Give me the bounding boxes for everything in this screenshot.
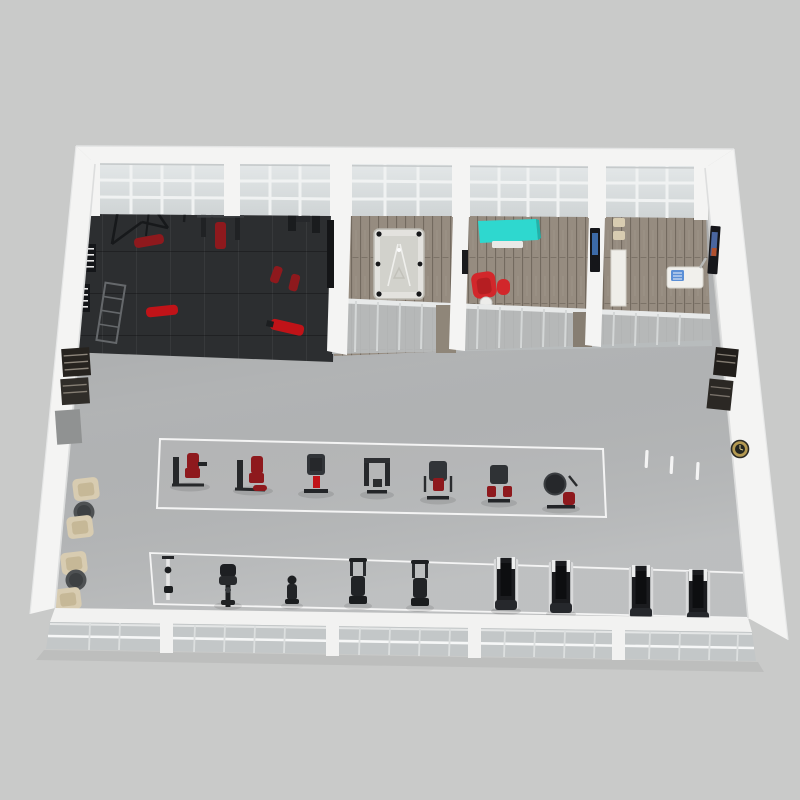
treadmill	[491, 557, 521, 615]
pool-table	[374, 229, 424, 299]
wall-clock	[732, 441, 749, 458]
wall-pier	[612, 629, 625, 660]
desk-base	[492, 241, 523, 248]
red-armchair	[470, 270, 497, 299]
cue-ball	[397, 248, 401, 252]
side-table-top	[69, 573, 83, 587]
wall-pier	[588, 164, 606, 218]
treadmill	[546, 560, 576, 618]
storage-cabinet	[611, 250, 626, 306]
armchair	[72, 476, 100, 501]
cyan-reception-desk	[478, 219, 538, 243]
side-chair	[613, 218, 625, 227]
armchair	[66, 514, 94, 539]
red-ottoman	[497, 279, 510, 295]
wall-tv	[462, 250, 468, 274]
gym-floor-plan-svg	[0, 0, 800, 800]
wall-pier	[468, 627, 481, 658]
treadmill	[626, 565, 656, 623]
wall-pier	[452, 163, 470, 217]
wall-pier	[160, 622, 173, 653]
wall-pier	[224, 162, 240, 216]
billiards-room	[374, 229, 424, 299]
top-windows	[95, 163, 705, 218]
floor-plan-render	[0, 0, 800, 800]
side-chair	[613, 231, 625, 240]
armchair	[54, 586, 82, 611]
top-wall	[76, 146, 734, 220]
wall-tv	[590, 228, 600, 272]
left-wall-panel	[55, 409, 82, 445]
wall-pier	[330, 162, 352, 216]
strength-zone-outline	[157, 439, 606, 517]
wall-mirror-panel	[327, 220, 334, 288]
wall-pier	[326, 625, 339, 656]
